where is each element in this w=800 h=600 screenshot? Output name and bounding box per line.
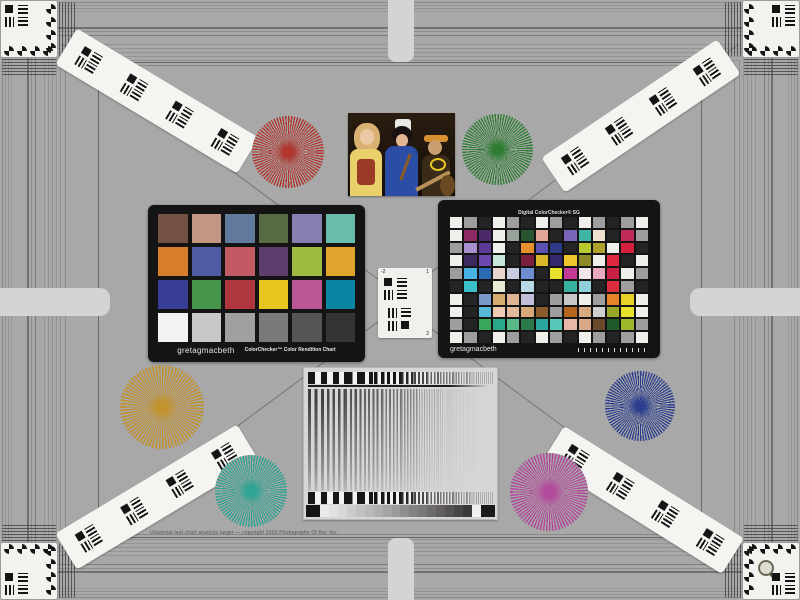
sg-patch <box>479 332 491 343</box>
bar-segment <box>427 492 440 504</box>
sg-patch <box>579 243 591 254</box>
usaf-bars <box>785 17 795 26</box>
sg-patch <box>593 307 605 318</box>
usaf-bars <box>18 17 28 26</box>
sector-star-teal <box>215 455 287 527</box>
sg-patch <box>621 307 633 318</box>
usaf-bars <box>384 290 393 300</box>
sg-patch <box>579 217 591 228</box>
usaf-black-square <box>658 500 669 511</box>
sg-patch <box>607 307 619 318</box>
sg-patch <box>479 268 491 279</box>
corner-grating <box>2 525 56 541</box>
sg-patch <box>564 230 576 241</box>
edge-tab-bottom <box>388 538 414 600</box>
sg-patch <box>479 307 491 318</box>
sg-patch <box>507 255 519 266</box>
bar-segment <box>374 492 387 504</box>
wedge-step <box>356 505 365 517</box>
sg-patch <box>450 230 462 241</box>
usaf-bars <box>397 278 407 287</box>
usaf-bar-group <box>651 500 680 529</box>
usaf-black-square <box>613 472 624 483</box>
pie-mark <box>4 544 14 554</box>
usaf-bars <box>708 67 721 80</box>
sg-ruler-ticks <box>578 348 648 352</box>
usaf-bar-group <box>1 569 32 599</box>
color-patch <box>192 247 222 276</box>
sg-patch <box>479 294 491 305</box>
sg-patch <box>507 230 519 241</box>
sg-patch <box>593 281 605 292</box>
edge-tab-left <box>0 288 110 316</box>
bar-segment <box>467 492 480 504</box>
registration-marks <box>747 544 796 554</box>
pie-mark <box>46 572 56 582</box>
corner-target-bottom-right <box>742 542 800 600</box>
pie-mark <box>773 544 783 554</box>
sg-patch <box>636 281 648 292</box>
reference-line <box>308 385 489 387</box>
sg-patch <box>636 332 648 343</box>
sg-patch <box>621 332 633 343</box>
pie-mark <box>43 46 53 56</box>
wedge-step <box>472 505 481 517</box>
sg-patch <box>636 243 648 254</box>
color-patch <box>192 280 222 309</box>
sg-patch <box>536 255 548 266</box>
colorchecker-classic-chart: gretagmacbeth ColorChecker™ Color Rendit… <box>148 205 365 362</box>
color-patch <box>259 247 289 276</box>
color-patch <box>158 214 188 243</box>
registration-marks <box>4 46 53 56</box>
bar-segment <box>440 492 453 504</box>
bar-segment <box>480 372 493 384</box>
color-patch <box>158 280 188 309</box>
color-patch <box>292 313 322 342</box>
wedge-step <box>347 505 356 517</box>
usaf-black-square <box>172 101 183 112</box>
color-patch <box>326 247 356 276</box>
usaf-black-square <box>401 321 409 329</box>
usaf-bars <box>84 61 97 74</box>
color-patch <box>292 214 322 243</box>
sg-patch <box>479 281 491 292</box>
usaf-bars <box>90 533 103 546</box>
bar-segment <box>480 492 493 504</box>
bar-segment <box>348 492 361 504</box>
color-patch <box>259 280 289 309</box>
sg-patch <box>550 255 562 266</box>
sg-patch <box>450 243 462 254</box>
sg-patch <box>579 281 591 292</box>
bar-segment <box>414 372 427 384</box>
usaf-bars <box>181 479 194 492</box>
sg-patch <box>593 332 605 343</box>
sg-patch <box>521 243 533 254</box>
wedge-step <box>338 505 347 517</box>
sg-patch <box>464 230 476 241</box>
pie-mark <box>46 559 56 569</box>
usaf-bars <box>785 573 795 582</box>
sg-patch <box>536 268 548 279</box>
wedge-step <box>436 505 445 517</box>
usaf-black-square <box>772 573 780 581</box>
sg-patch <box>564 255 576 266</box>
corner-grating <box>744 525 798 541</box>
sg-patch <box>450 217 462 228</box>
sg-patch <box>464 217 476 228</box>
usaf-bar-group <box>74 524 103 553</box>
usaf-bars <box>772 17 781 27</box>
sg-patch <box>579 230 591 241</box>
usaf-bar-group <box>692 57 721 86</box>
bar-segment <box>467 372 480 384</box>
sg-patch <box>564 268 576 279</box>
wedge-step <box>320 505 329 517</box>
colorchecker-sg-chart: Digital ColorChecker® SG gretagmacbeth <box>438 200 660 358</box>
usaf-black-square <box>703 528 714 539</box>
pie-mark <box>46 17 56 27</box>
usaf-bar-group <box>74 46 103 75</box>
sg-patch <box>536 243 548 254</box>
sg-patch <box>521 332 533 343</box>
pie-mark <box>46 585 56 595</box>
pie-mark <box>744 572 754 582</box>
pie-mark <box>17 544 27 554</box>
sg-patch <box>564 281 576 292</box>
sg-patch <box>636 230 648 241</box>
corner-target-bottom-left <box>0 542 58 600</box>
sg-patch <box>464 243 476 254</box>
sg-patch <box>607 255 619 266</box>
sg-patch <box>621 319 633 330</box>
frequency-bar-strip-top <box>308 372 493 384</box>
sector-star-orange <box>120 365 204 449</box>
sg-patch <box>550 307 562 318</box>
corner-target-top-right <box>742 0 800 58</box>
usaf-bars <box>397 290 407 299</box>
sector-star-green <box>462 114 533 185</box>
pie-mark <box>760 544 770 554</box>
usaf-black-square <box>5 5 13 13</box>
portrait-right-woman-face <box>428 140 442 155</box>
sg-patch <box>493 294 505 305</box>
pie-mark <box>744 4 754 14</box>
pie-mark <box>744 559 754 569</box>
sg-patch <box>550 243 562 254</box>
sg-patch <box>521 217 533 228</box>
portrait-photo <box>348 113 455 196</box>
wedge-step <box>481 505 495 517</box>
color-patch <box>326 214 356 243</box>
usaf-bars <box>18 585 28 594</box>
sg-patch <box>593 268 605 279</box>
colorchecker-classic-patches <box>158 214 355 342</box>
sg-patch <box>636 268 648 279</box>
bar-segment <box>414 492 427 504</box>
bar-segment <box>361 492 374 504</box>
bar-segment <box>401 492 414 504</box>
sg-patch <box>507 243 519 254</box>
fine-print: Universal test chart analysis target — c… <box>150 530 338 536</box>
pie-mark <box>747 46 757 56</box>
sg-patch <box>493 268 505 279</box>
pie-mark <box>786 46 796 56</box>
pie-mark <box>744 585 754 595</box>
sg-patch <box>550 268 562 279</box>
sg-patch <box>564 294 576 305</box>
usaf-bar-group <box>211 128 240 157</box>
sg-patch <box>521 319 533 330</box>
edge-tab-top <box>388 0 414 62</box>
usaf-bar-group <box>165 100 194 129</box>
usaf-bar-group <box>768 569 799 599</box>
edge-tab-right <box>690 288 800 316</box>
sg-patch <box>507 281 519 292</box>
wedge-step <box>306 505 320 517</box>
sg-patch <box>636 255 648 266</box>
sg-patch <box>493 255 505 266</box>
pie-mark <box>17 46 27 56</box>
wedge-step <box>463 505 472 517</box>
usaf-bar-group <box>120 496 149 525</box>
pie-mark <box>760 46 770 56</box>
usaf-bar-group <box>165 469 194 498</box>
portrait-left-woman-bodice <box>357 159 375 185</box>
usaf-black-square <box>5 573 13 581</box>
sg-patch <box>493 243 505 254</box>
sg-patch <box>536 217 548 228</box>
bar-segment <box>387 492 400 504</box>
usaf-bars <box>220 143 233 156</box>
usaf-bar-group <box>384 304 415 335</box>
pie-mark <box>30 46 40 56</box>
sg-patch <box>636 217 648 228</box>
sg-patch <box>579 268 591 279</box>
usaf-bar-group <box>606 471 635 500</box>
sg-patch <box>479 255 491 266</box>
sg-patch <box>593 217 605 228</box>
sg-patch <box>450 294 462 305</box>
usaf-bars <box>18 5 28 14</box>
usaf-black-square <box>568 444 579 455</box>
sg-patch <box>636 319 648 330</box>
sg-patch <box>507 268 519 279</box>
sg-patch <box>579 307 591 318</box>
sg-patch <box>507 307 519 318</box>
sg-patch <box>564 217 576 228</box>
usaf-black-square <box>126 73 137 84</box>
color-patch <box>326 280 356 309</box>
bar-segment <box>334 492 347 504</box>
usaf-bar-group <box>561 146 590 175</box>
sg-patch <box>521 268 533 279</box>
sg-patch <box>521 230 533 241</box>
usaf-bars <box>772 585 781 595</box>
colorchecker-brand: gretagmacbeth <box>177 346 234 355</box>
color-patch <box>292 280 322 309</box>
colorchecker-title: ColorChecker™ Color Rendition Chart <box>245 347 336 353</box>
bar-segment <box>374 372 387 384</box>
pie-mark <box>747 544 757 554</box>
corner-target-top-left <box>0 0 58 58</box>
pie-mark <box>4 46 14 56</box>
sg-patch <box>607 319 619 330</box>
usaf-bars <box>785 585 795 594</box>
sg-patch <box>450 319 462 330</box>
wedge-step <box>374 505 383 517</box>
sg-patch <box>507 217 519 228</box>
sg-patch <box>464 281 476 292</box>
sg-patch <box>564 332 576 343</box>
color-patch <box>225 247 255 276</box>
bar-segment <box>361 372 374 384</box>
sg-patch <box>536 307 548 318</box>
sg-patch <box>507 332 519 343</box>
sg-patch <box>607 243 619 254</box>
sg-patch <box>536 319 548 330</box>
sg-patch <box>536 281 548 292</box>
bar-segment <box>308 372 321 384</box>
sg-patch <box>636 307 648 318</box>
sg-patch <box>464 268 476 279</box>
usaf-bar-group <box>648 87 677 116</box>
sg-patch <box>621 268 633 279</box>
pie-mark <box>744 17 754 27</box>
wedge-step <box>400 505 409 517</box>
sg-patch <box>607 281 619 292</box>
sg-patch <box>621 230 633 241</box>
usaf-bars <box>135 506 148 519</box>
sg-patch <box>621 294 633 305</box>
usaf-black-square <box>81 46 92 57</box>
corner-grating <box>725 2 741 56</box>
color-patch <box>225 280 255 309</box>
pie-mark <box>773 46 783 56</box>
color-patch <box>326 313 356 342</box>
wedge-step <box>329 505 338 517</box>
usaf-bars <box>175 116 188 129</box>
usaf-black-square <box>772 5 780 13</box>
wedge-step <box>409 505 418 517</box>
bar-segment <box>453 372 466 384</box>
sg-patch <box>579 294 591 305</box>
sg-patch <box>550 217 562 228</box>
color-patch <box>225 214 255 243</box>
bar-segment <box>387 372 400 384</box>
registration-marks <box>4 544 53 554</box>
usaf-bars <box>5 585 14 595</box>
wedge-step <box>454 505 463 517</box>
color-patch <box>158 247 188 276</box>
portrait-necklace <box>430 158 446 171</box>
sg-patch <box>493 217 505 228</box>
sg-patch <box>564 243 576 254</box>
sg-patch <box>450 307 462 318</box>
sg-patch <box>636 294 648 305</box>
corner-grating <box>2 59 56 75</box>
test-chart-photo: gretagmacbeth ColorChecker™ Color Rendit… <box>0 0 800 600</box>
sg-patch <box>593 294 605 305</box>
sg-patch <box>593 243 605 254</box>
sg-patch <box>564 307 576 318</box>
wedge-step <box>365 505 374 517</box>
pie-mark <box>30 544 40 554</box>
sg-title: Digital ColorChecker® SG <box>450 210 648 217</box>
sg-patch <box>593 230 605 241</box>
bar-segment <box>401 372 414 384</box>
sg-patch <box>493 332 505 343</box>
pie-mark <box>46 4 56 14</box>
sg-patch <box>450 281 462 292</box>
sg-patch <box>621 217 633 228</box>
sg-patch <box>450 268 462 279</box>
colorchecker-sg-patches <box>450 217 648 343</box>
bar-segment <box>321 372 334 384</box>
sg-patch <box>464 294 476 305</box>
sweep-grayscale-card <box>303 367 498 520</box>
sg-patch <box>550 294 562 305</box>
frequency-bar-strip-bottom <box>308 492 493 504</box>
usaf-bar-group <box>380 274 411 304</box>
usaf-bars <box>785 5 795 14</box>
sg-patch <box>521 281 533 292</box>
pie-mark <box>786 544 796 554</box>
sg-patch <box>579 319 591 330</box>
sg-patch <box>550 230 562 241</box>
pie-mark <box>46 30 56 40</box>
sg-patch <box>536 230 548 241</box>
sg-patch <box>493 230 505 241</box>
sector-star-red <box>252 116 324 188</box>
bar-segment <box>348 372 361 384</box>
sg-patch <box>493 307 505 318</box>
sg-patch <box>621 281 633 292</box>
center-resolution-target: -2 1 2 <box>378 268 432 338</box>
sg-patch <box>507 294 519 305</box>
color-patch <box>225 313 255 342</box>
sg-patch <box>479 319 491 330</box>
sg-patch <box>607 294 619 305</box>
sg-patch <box>579 255 591 266</box>
sg-patch <box>536 332 548 343</box>
wedge-step <box>445 505 454 517</box>
usaf-bar-group <box>696 528 725 557</box>
sg-patch <box>564 319 576 330</box>
grayscale-step-wedge <box>306 505 495 517</box>
color-patch <box>192 313 222 342</box>
sg-patch <box>479 243 491 254</box>
usaf-bars <box>5 17 14 27</box>
wedge-step <box>418 505 427 517</box>
bar-segment <box>334 372 347 384</box>
usaf-bars <box>401 308 411 317</box>
sg-patch <box>521 307 533 318</box>
sg-patch <box>607 268 619 279</box>
sg-patch <box>521 294 533 305</box>
sg-patch <box>593 319 605 330</box>
portrait-guitar-body <box>440 175 455 196</box>
usaf-bars <box>706 543 719 556</box>
usaf-bars <box>388 321 397 331</box>
usaf-bars <box>388 308 397 318</box>
sg-patch <box>579 332 591 343</box>
corner-grating <box>744 59 798 75</box>
sg-patch <box>621 255 633 266</box>
wedge-step <box>383 505 392 517</box>
usaf-bars <box>576 155 589 168</box>
